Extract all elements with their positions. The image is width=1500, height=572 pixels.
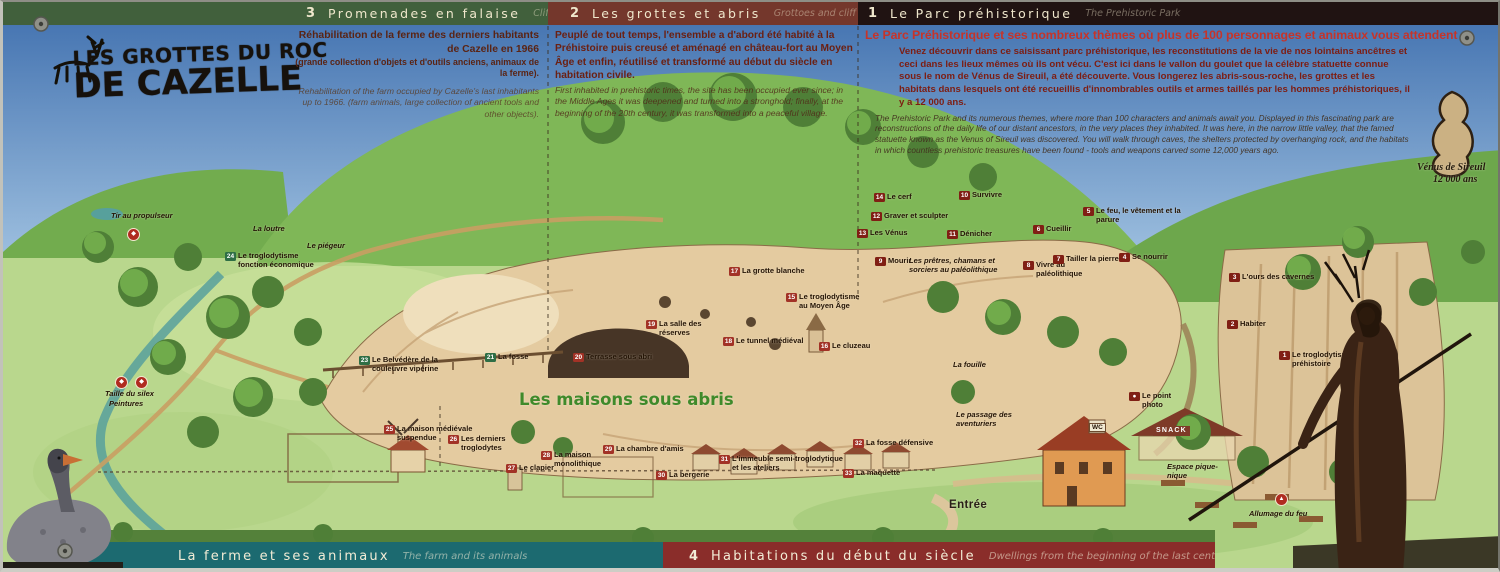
map-label-text: Se nourrir (1132, 253, 1168, 262)
map-label-text: Terrasse sous abri (586, 353, 652, 362)
label-number-chip: 27 (506, 464, 517, 473)
map-label: Taille du silex (105, 390, 154, 399)
label-number-chip: 12 (871, 212, 882, 221)
section-2-header: 2 Les grottes et abris Grottoes and clif… (548, 2, 858, 25)
map-label-text: La fouille (953, 361, 986, 370)
map-label-text: Habiter (1240, 320, 1266, 329)
map-label-text: Cueillir (1046, 225, 1071, 234)
map-label-text: Vénus de Sireuil (1417, 163, 1485, 173)
map-label: 19La salle des réserves (646, 320, 706, 337)
map-label-text: La salle des réserves (659, 320, 706, 337)
label-number-chip: ● (1129, 392, 1140, 401)
map-label-text: 12 000 ans (1433, 175, 1477, 185)
map-label: 24Le troglodytisme fonction économique (225, 252, 320, 269)
map-label: 9Mourir (875, 257, 911, 266)
map-label-text: Dénicher (960, 230, 992, 239)
map-label-text: La maquette (856, 469, 900, 478)
map-label-text: Espace pique-nique (1167, 463, 1227, 480)
map-label: 6Cueillir (1033, 225, 1071, 234)
label-number-chip: 29 (603, 445, 614, 454)
label-tir-au-propulseur: Tir au propulseur (111, 212, 173, 221)
map-label-text: Les derniers troglodytes (461, 435, 520, 452)
map-label-text: Le cluzeau (832, 342, 870, 351)
label-number-chip: 18 (723, 337, 734, 346)
map-label: 31L'immeuble semi-troglodytique et les a… (719, 455, 844, 472)
map-label: 29La chambre d'amis (603, 445, 684, 454)
map-label-text: La bergerie (669, 471, 709, 480)
map-label: 1Le troglodytisme durant la préhistoire (1279, 351, 1391, 368)
section-4-number: 4 (689, 549, 698, 564)
section-3-title: Promenades en falaise (328, 6, 520, 21)
label-number-chip: 15 (786, 293, 797, 302)
map-label: Allumage du feu (1249, 510, 1307, 519)
label-number-chip: 19 (646, 320, 657, 329)
map-label: WC (1089, 423, 1106, 432)
map-label: Le passage des aventuriers (956, 411, 1036, 428)
map-label: 13Les Vénus (857, 229, 908, 238)
map-label-text: Tailler la pierre (1066, 255, 1119, 264)
map-label: 3L'ours des cavernes (1229, 273, 1314, 282)
map-label: 26Les derniers troglodytes (448, 435, 520, 452)
map-label-text: La chambre d'amis (616, 445, 684, 454)
map-label: 18Le tunnel médiéval (723, 337, 804, 346)
map-label-text: Le feu, le vêtement et la parure (1096, 207, 1181, 224)
map-label: 7Tailler la pierre (1053, 255, 1119, 264)
section-1-number: 1 (868, 6, 877, 21)
map-label-text: Le passage des aventuriers (956, 411, 1036, 428)
section-4-header: 4 Habitations du début du siècle Dwellin… (663, 542, 1215, 570)
section-4-title: Habitations du début du siècle (711, 549, 976, 564)
label-venus-de-sireuil: Vénus de Sireuil (1417, 163, 1485, 173)
farm-section-title: La ferme et ses animaux (178, 549, 390, 564)
label-number-chip: 31 (719, 455, 730, 464)
map-label: 12 000 ans (1433, 175, 1477, 185)
label-number-chip: 32 (853, 439, 864, 448)
map-label: La loutre (253, 225, 285, 234)
map-label: 17La grotte blanche (729, 267, 805, 276)
map-label-text: Le troglodytisme au Moyen Âge (799, 293, 866, 310)
map-label-text: La fosse défensive (866, 439, 933, 448)
label-number-chip: 2 (1227, 320, 1238, 329)
map-label-text: SNACK (1153, 426, 1190, 436)
park-map-sign-photo: 3 Promenades en falaise Cliff Walks 2 Le… (0, 0, 1500, 572)
flint-knapping-activity-icon: ◆ (115, 376, 128, 389)
map-label: Peintures (109, 400, 143, 409)
map-label-text: Les prêtres, chamans et sorciers au palé… (909, 257, 1019, 274)
map-label-text: WC (1089, 423, 1106, 432)
label-number-chip: 3 (1229, 273, 1240, 282)
map-label: 32La fosse défensive (853, 439, 933, 448)
section-3-title-en: Cliff Walks (533, 8, 548, 19)
section-3-header: 3 Promenades en falaise Cliff Walks (3, 2, 548, 25)
label-number-chip: 33 (843, 469, 854, 478)
fire-lighting-icon: ▲ (1275, 493, 1288, 506)
label-number-chip: 6 (1033, 225, 1044, 234)
label-number-chip: 20 (573, 353, 584, 362)
map-label-text: Taille du silex (105, 390, 154, 399)
map-label: 4Se nourrir (1119, 253, 1168, 262)
map-label-text: La fosse (498, 353, 528, 362)
map-label: 16Le cluzeau (819, 342, 870, 351)
map-label-text: La loutre (253, 225, 285, 234)
map-label-text: L'immeuble semi-troglodytique et les ate… (732, 455, 844, 472)
label-number-chip: 1 (1279, 351, 1290, 360)
map-label: 5Le feu, le vêtement et la parure (1083, 207, 1181, 224)
map-label-text: Entrée (949, 500, 987, 512)
map-label: 14Le cerf (874, 193, 912, 202)
map-label: Espace pique-nique (1167, 463, 1227, 480)
map-label-text: Les Vénus (870, 229, 908, 238)
label-number-chip: 30 (656, 471, 667, 480)
map-labels-layer: Tir au propulseur◆La loutreLe piégeur24L… (3, 2, 1498, 568)
label-number-chip: 14 (874, 193, 885, 202)
map-label: 11Dénicher (947, 230, 992, 239)
map-label-text: Peintures (109, 400, 143, 409)
farm-section-header: La ferme et ses animaux The farm and its… (83, 542, 663, 570)
map-label: SNACK (1153, 426, 1190, 436)
map-label-text: Le cerf (887, 193, 912, 202)
label-number-chip: 23 (359, 356, 370, 365)
map-label-text: Mourir (888, 257, 911, 266)
map-label-text: Le piégeur (307, 242, 345, 251)
label-number-chip: 11 (947, 230, 958, 239)
label-photo-point: ●Le point photo (1129, 392, 1175, 409)
farm-section-title-en: The farm and its animals (403, 551, 528, 562)
label-number-chip: 16 (819, 342, 830, 351)
label-number-chip: 25 (384, 425, 395, 434)
map-label: La fouille (953, 361, 986, 370)
section-2-title: Les grottes et abris (592, 6, 761, 21)
map-label: Les prêtres, chamans et sorciers au palé… (909, 257, 1019, 274)
label-number-chip: 8 (1023, 261, 1034, 270)
map-label: 21La fosse (485, 353, 528, 362)
map-label-text: Allumage du feu (1249, 510, 1307, 519)
label-number-chip: 5 (1083, 207, 1094, 216)
section-3-number: 3 (306, 6, 315, 21)
label-les-maisons-sous-abris: Les maisons sous abris (519, 392, 734, 409)
map-label-text: Le Belvédère de la couleuvre vipérine (372, 356, 464, 373)
map-label-text: Le troglodytisme fonction économique (238, 252, 320, 269)
map-label-text: L'ours des cavernes (1242, 273, 1314, 282)
map-label: 12Graver et sculpter (871, 212, 948, 221)
label-number-chip: 24 (225, 252, 236, 261)
label-number-chip: 26 (448, 435, 459, 444)
label-number-chip: 13 (857, 229, 868, 238)
map-label-text: Graver et sculpter (884, 212, 948, 221)
map-label: Entrée (949, 500, 987, 512)
painting-activity-icon: ◆ (135, 376, 148, 389)
label-number-chip: 21 (485, 353, 496, 362)
map-label: 20Terrasse sous abri (573, 353, 652, 362)
section-2-title-en: Grottoes and cliff shelters (774, 8, 858, 19)
map-label: 15Le troglodytisme au Moyen Âge (786, 293, 866, 310)
map-label-text: Les maisons sous abris (519, 392, 734, 409)
map-label: ◆ (135, 376, 148, 389)
section-1-title-en: The Prehistoric Park (1085, 8, 1180, 19)
map-label: ◆ (127, 228, 140, 241)
map-label: 30La bergerie (656, 471, 709, 480)
map-label-text: Tir au propulseur (111, 212, 173, 221)
section-4-title-en: Dwellings from the beginning of the last… (989, 551, 1215, 562)
map-label-text: Le troglodytisme durant la préhistoire (1292, 351, 1391, 368)
section-1-header: 1 Le Parc préhistorique The Prehistoric … (858, 2, 1500, 25)
map-label: Le piégeur (307, 242, 345, 251)
section-1-title: Le Parc préhistorique (890, 6, 1072, 21)
label-number-chip: 10 (959, 191, 970, 200)
map-label: 33La maquette (843, 469, 900, 478)
map-label: 10Survivre (959, 191, 1002, 200)
label-number-chip: 17 (729, 267, 740, 276)
map-label: 23Le Belvédère de la couleuvre vipérine (359, 356, 464, 373)
map-label-text: Le point photo (1142, 392, 1175, 409)
label-number-chip: 28 (541, 451, 552, 460)
label-number-chip: 4 (1119, 253, 1130, 262)
map-label-text: La grotte blanche (742, 267, 805, 276)
section-2-number: 2 (570, 6, 579, 21)
label-number-chip: 7 (1053, 255, 1064, 264)
map-label: ▲ (1275, 493, 1288, 506)
map-label: ◆ (115, 376, 128, 389)
map-label-text: Le tunnel médiéval (736, 337, 804, 346)
spear-thrower-activity-icon: ◆ (127, 228, 140, 241)
map-label-text: Survivre (972, 191, 1002, 200)
map-label: 2Habiter (1227, 320, 1266, 329)
label-number-chip: 9 (875, 257, 886, 266)
